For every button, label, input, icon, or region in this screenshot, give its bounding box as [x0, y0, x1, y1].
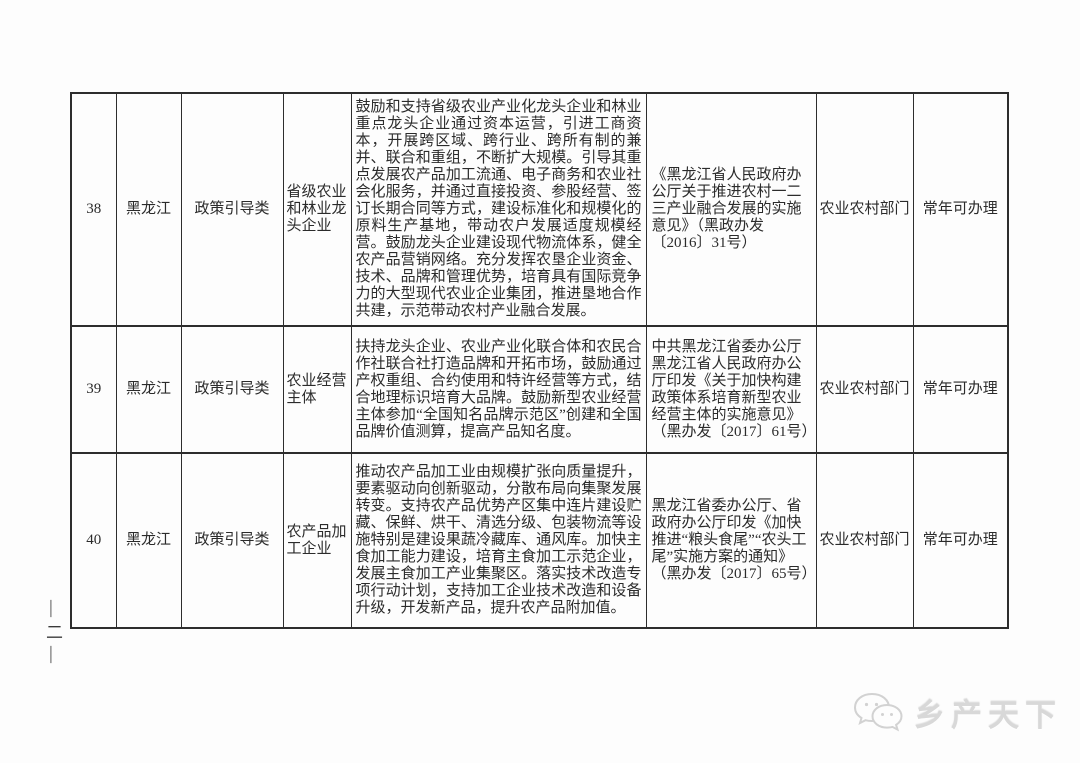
table-row: 40 黑龙江 政策引导类 农产品加工企业 推动农产品加工业由规模扩张向质量提升，…	[71, 453, 1008, 628]
cell-index: 40	[71, 453, 116, 628]
cell-department: 农业农村部门	[816, 453, 913, 628]
cell-department: 农业农村部门	[816, 93, 913, 326]
cell-measures: 推动农产品加工业由规模扩张向质量提升，要素驱动向创新驱动，分散布局向集聚发展转变…	[351, 453, 646, 628]
cell-category: 政策引导类	[181, 453, 283, 628]
cell-category: 政策引导类	[181, 93, 283, 326]
cell-measures: 扶持龙头企业、农业产业化联合体和农民合作社联合社打造品牌和开拓市场，鼓励通过产权…	[351, 326, 646, 453]
page-number: —二—	[40, 600, 65, 669]
cell-province: 黑龙江	[116, 453, 181, 628]
cell-availability: 常年可办理	[913, 326, 1008, 453]
cell-category: 政策引导类	[181, 326, 283, 453]
document-page: 38 黑龙江 政策引导类 省级农业和林业龙头企业 鼓励和支持省级农业产业化龙头企…	[0, 0, 1080, 763]
policy-table: 38 黑龙江 政策引导类 省级农业和林业龙头企业 鼓励和支持省级农业产业化龙头企…	[70, 92, 1009, 629]
cell-subject: 省级农业和林业龙头企业	[283, 93, 351, 326]
cell-province: 黑龙江	[116, 93, 181, 326]
cell-policy-basis: 《黑龙江省人民政府办公厅关于推进农村一二三产业融合发展的实施意见》（黑政办发〔2…	[646, 93, 816, 326]
cell-subject: 农产品加工企业	[283, 453, 351, 628]
cell-availability: 常年可办理	[913, 453, 1008, 628]
cell-subject: 农业经营主体	[283, 326, 351, 453]
cell-department: 农业农村部门	[816, 326, 913, 453]
cell-policy-basis: 中共黑龙江省委办公厅黑龙江省人民政府办公厅印发《关于加快构建政策体系培育新型农业…	[646, 326, 816, 453]
table-row: 38 黑龙江 政策引导类 省级农业和林业龙头企业 鼓励和支持省级农业产业化龙头企…	[71, 93, 1008, 326]
watermark: 乡产天下	[852, 690, 1062, 735]
watermark-text: 乡产天下	[914, 690, 1062, 735]
cell-availability: 常年可办理	[913, 93, 1008, 326]
cell-province: 黑龙江	[116, 326, 181, 453]
cell-index: 38	[71, 93, 116, 326]
table-row: 39 黑龙江 政策引导类 农业经营主体 扶持龙头企业、农业产业化联合体和农民合作…	[71, 326, 1008, 453]
wechat-chat-bubbles-icon	[852, 691, 904, 735]
cell-index: 39	[71, 326, 116, 453]
cell-measures: 鼓励和支持省级农业产业化龙头企业和林业重点龙头企业通过资本运营，引进工商资本，开…	[351, 93, 646, 326]
cell-policy-basis: 黑龙江省委办公厅、省政府办公厅印发《加快推进“粮头食尾”“农头工尾”实施方案的通…	[646, 453, 816, 628]
